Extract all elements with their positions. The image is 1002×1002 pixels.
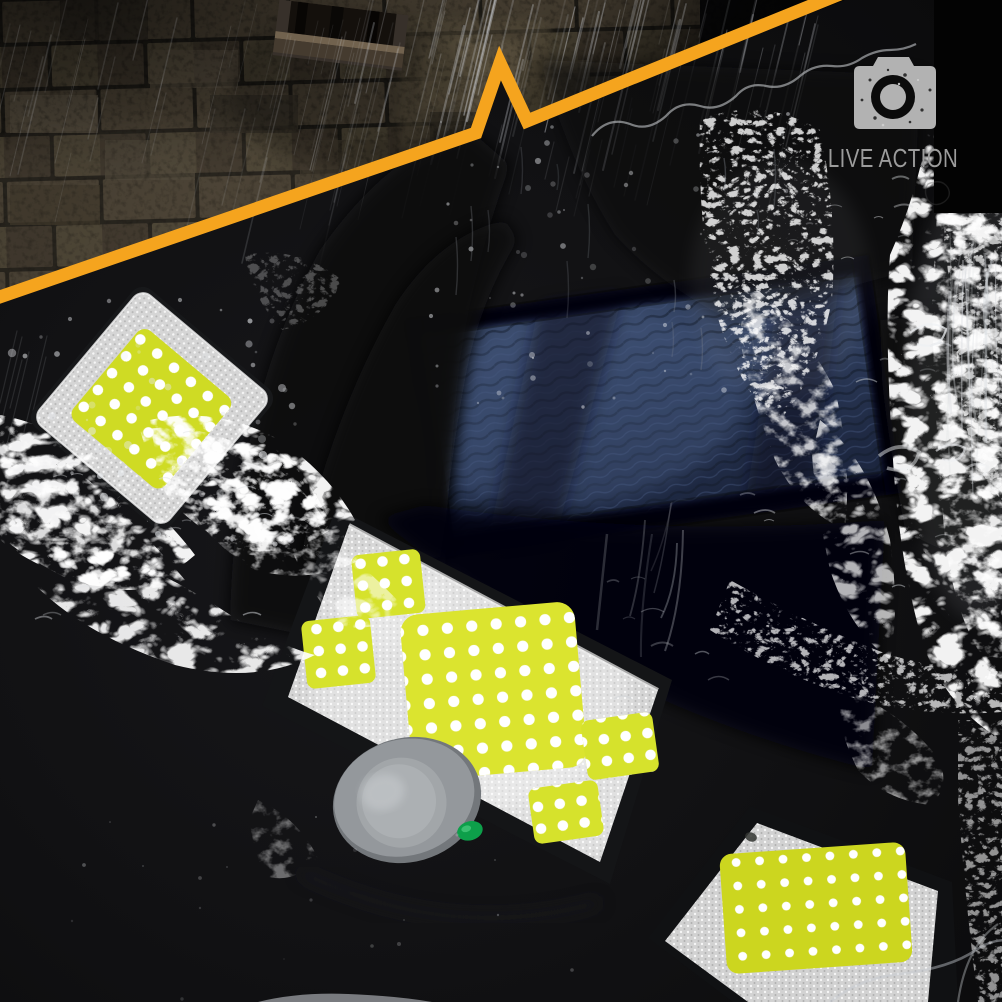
svg-text:LIVE ACTION: LIVE ACTION	[828, 144, 958, 173]
